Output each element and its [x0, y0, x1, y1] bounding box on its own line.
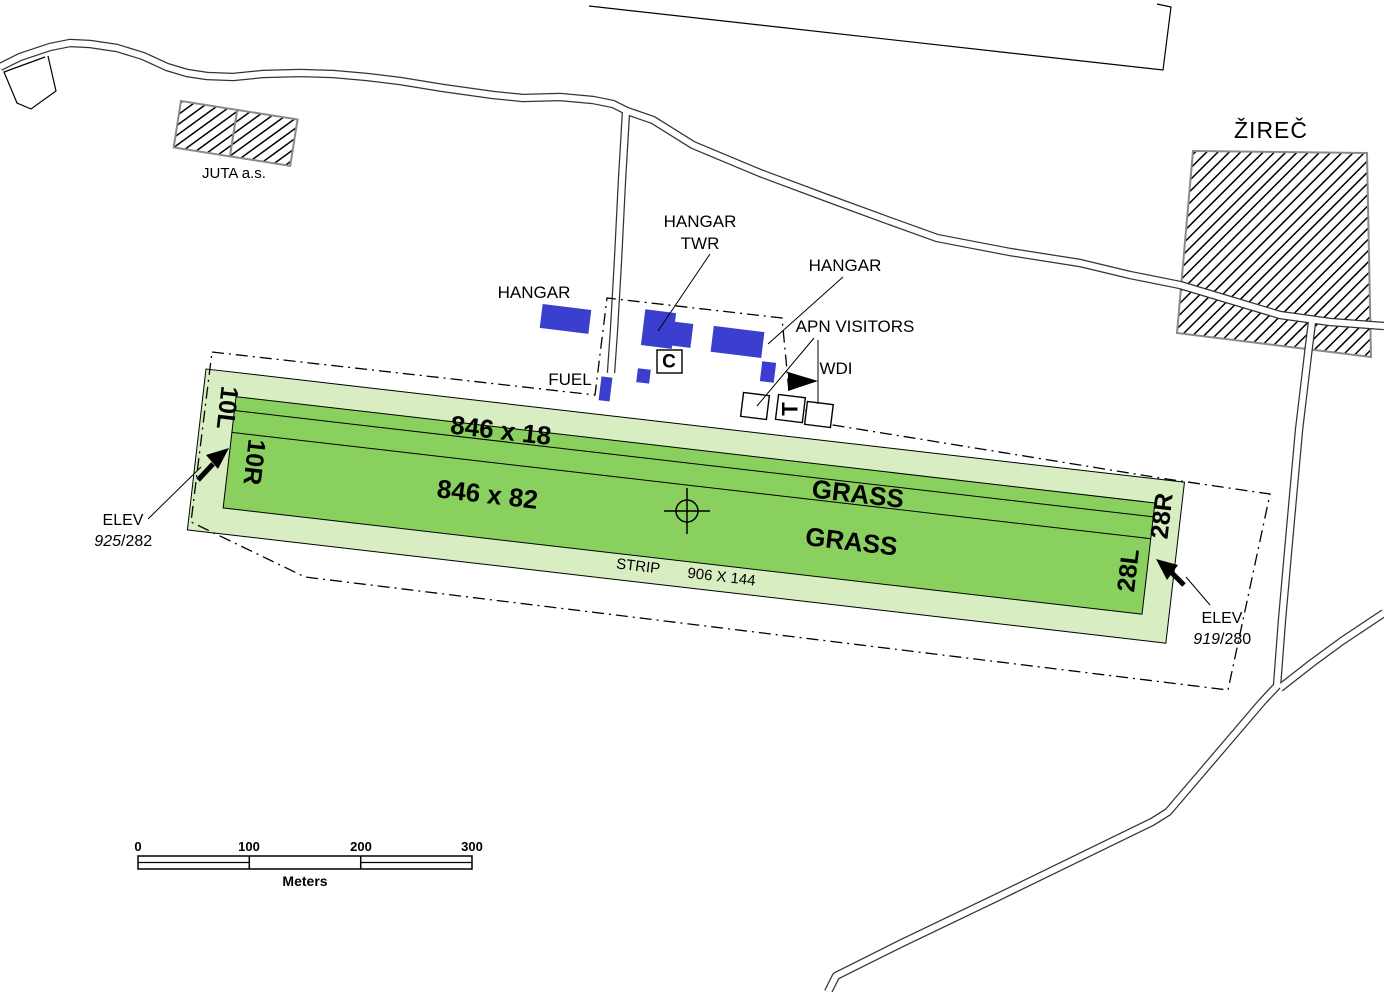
elev-east-label: ELEV	[1202, 610, 1243, 627]
scale-tick-0: 0	[134, 839, 141, 854]
elev-west-meters: /282	[121, 533, 152, 550]
elev-east-feet: 919	[1193, 631, 1220, 648]
apron-label: APN VISITORS	[796, 317, 915, 336]
designator-10r: 10R	[237, 438, 270, 487]
designator-28l: 28L	[1112, 547, 1145, 593]
fuel-station-building	[599, 376, 613, 401]
signal-area-letter: C	[662, 352, 676, 373]
signal-area: C	[657, 350, 682, 373]
apron-squares: T	[741, 393, 834, 428]
chart-svg: 846 x 18 GRASS 846 x 82 GRASS STRIP 906 …	[0, 0, 1384, 992]
hangar-tower-label-line1: HANGAR	[664, 212, 737, 231]
elev-west-feet: 925	[94, 533, 121, 550]
factory-building-east	[230, 110, 298, 166]
hangar-east-building	[711, 326, 765, 358]
elev-east-meters: /280	[1220, 631, 1251, 648]
factory-label: JUTA a.s.	[202, 165, 266, 182]
scale-unit-label: Meters	[282, 873, 327, 889]
designator-10l: 10L	[211, 385, 244, 431]
landing-tee-icon: T	[778, 402, 803, 416]
aerodrome-chart: 846 x 18 GRASS 846 x 82 GRASS STRIP 906 …	[0, 0, 1384, 992]
scale-bar: 0 100 200 300 Meters	[134, 839, 482, 889]
wdi-icon	[788, 340, 818, 404]
field-boundary-line	[589, 4, 1171, 70]
elev-east-leader-line	[1186, 577, 1210, 605]
hangar-east-label: HANGAR	[809, 256, 882, 275]
elev-west-label: ELEV	[103, 512, 144, 529]
factory-buildings	[174, 101, 298, 166]
fuel-label: FUEL	[548, 370, 591, 389]
small-building-center	[636, 368, 651, 383]
scale-tick-300: 300	[461, 839, 483, 854]
hangar-tower-building-ext	[659, 320, 694, 348]
scale-tick-100: 100	[238, 839, 260, 854]
hangar-west-building	[540, 304, 592, 334]
town-label: ŽIREČ	[1234, 116, 1308, 143]
visitor-square-2	[805, 401, 834, 427]
hangar-west-label: HANGAR	[498, 283, 571, 302]
tower-leader-line	[658, 254, 710, 331]
runway-strip-group: 846 x 18 GRASS 846 x 82 GRASS STRIP 906 …	[187, 369, 1184, 643]
small-building-east	[760, 361, 776, 383]
designator-28r: 28R	[1146, 491, 1179, 540]
factory-building-west	[174, 101, 238, 156]
hangar-tower-label-line2: TWR	[681, 234, 720, 253]
wdi-label: WDI	[819, 359, 852, 378]
scale-tick-200: 200	[350, 839, 372, 854]
